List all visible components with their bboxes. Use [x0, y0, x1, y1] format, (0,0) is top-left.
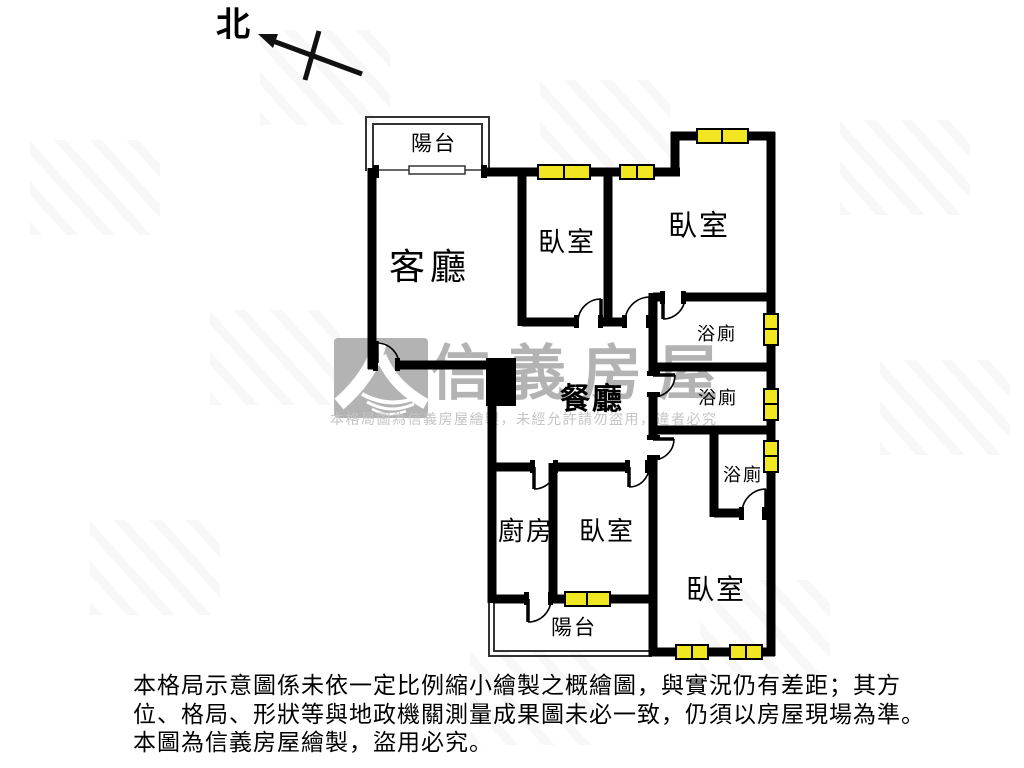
window	[764, 441, 778, 472]
room-label-bedroom-top-right: 臥室	[668, 213, 730, 242]
disclaimer-text: 本格局示意圖係未依一定比例縮小繪製之概繪圖，與實況仍有差距；其方 位、格局、形狀…	[133, 672, 925, 758]
floorplan-page: 信義房屋 本格局圖為信義房屋繪製，未經允許請勿盜用，違者必究	[0, 0, 1024, 768]
north-arrow-icon	[258, 31, 362, 80]
floor-plan-drawing	[0, 0, 1024, 768]
window	[620, 165, 654, 179]
room-label-kitchen: 廚房	[498, 519, 554, 545]
room-label-bedroom-bottom-mid: 臥室	[579, 519, 635, 545]
balcony-bottom-door	[528, 599, 551, 622]
disclaimer-line-1: 本格局示意圖係未依一定比例縮小繪製之概繪圖，與實況仍有差距；其方	[133, 672, 925, 701]
room-label-bath1: 浴廁	[697, 325, 737, 343]
window	[676, 645, 708, 659]
room-label-bedroom-bottom-right: 臥室	[686, 577, 746, 605]
window	[565, 592, 610, 606]
doors	[377, 297, 766, 622]
room-label-dining: 餐廳	[560, 385, 624, 415]
window	[730, 645, 762, 659]
structural-column	[486, 358, 516, 406]
window	[538, 165, 590, 179]
disclaimer-line-3: 本圖為信義房屋繪製，盜用必究。	[133, 729, 925, 758]
window	[764, 314, 778, 345]
room-label-living: 客廳	[389, 249, 471, 285]
room-label-balcony-bottom: 陽台	[551, 618, 597, 639]
disclaimer-line-2: 位、格局、形狀等與地政機關測量成果圖未必一致，仍須以房屋現場為準。	[133, 701, 925, 730]
bedroom-top-mid-door	[578, 299, 601, 322]
north-label: 北	[216, 9, 252, 43]
room-label-bedroom-top-mid: 臥室	[538, 230, 596, 257]
room-label-bath3: 浴廁	[723, 466, 763, 484]
room-label-balcony-top: 陽台	[411, 134, 457, 155]
room-label-bath2: 浴廁	[698, 389, 738, 407]
window	[764, 389, 778, 420]
window	[697, 129, 748, 143]
